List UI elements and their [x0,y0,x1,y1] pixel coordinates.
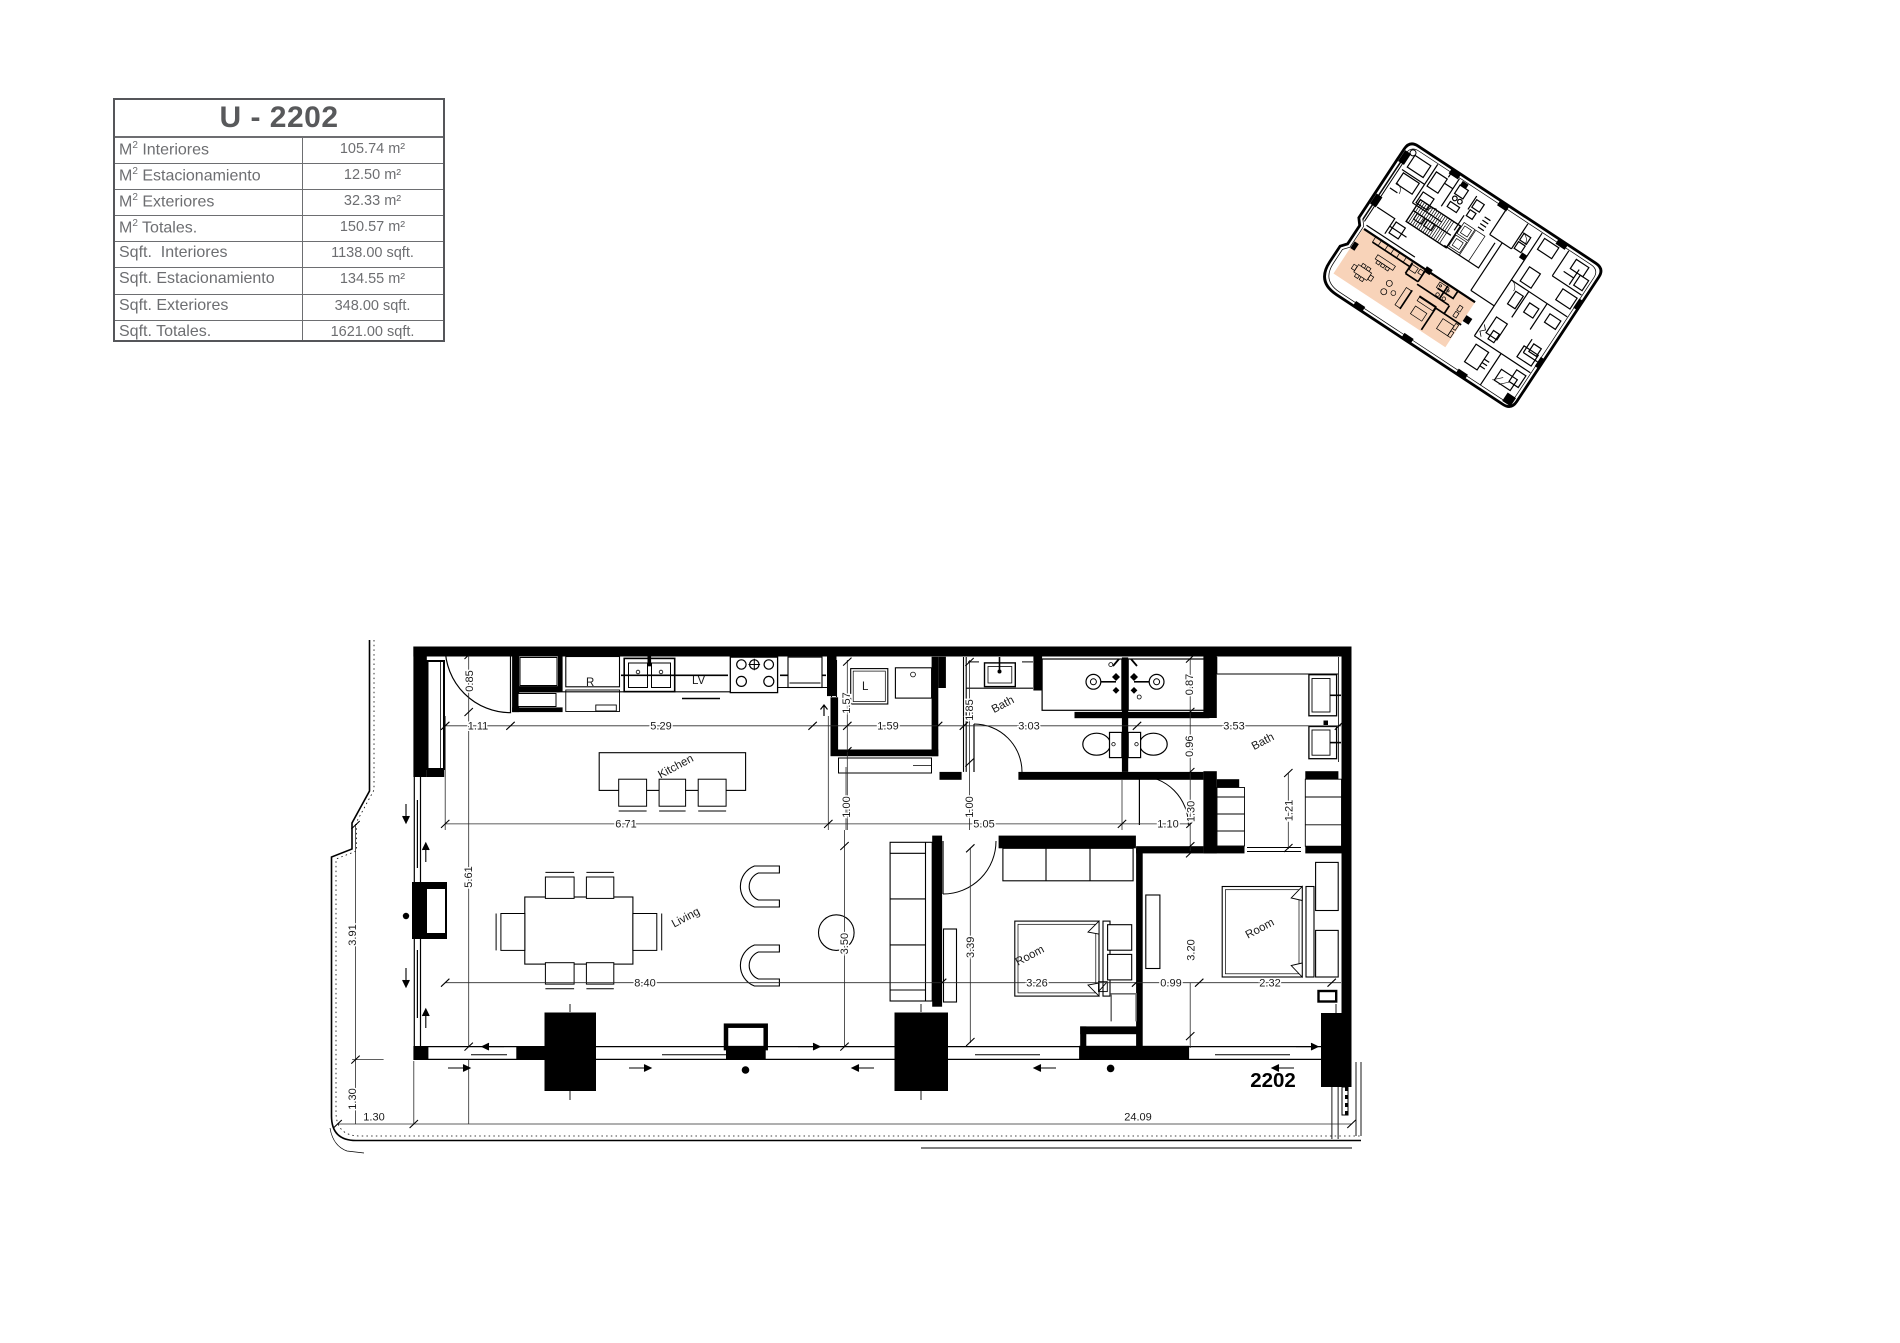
svg-text:Bath: Bath [990,694,1017,716]
svg-text:3.20: 3.20 [1186,939,1198,960]
svg-text:1.30: 1.30 [347,1088,359,1109]
svg-text:8.40: 8.40 [634,977,655,989]
svg-text:5.61: 5.61 [463,866,475,887]
svg-text:1.00: 1.00 [841,796,853,817]
svg-text:2.32: 2.32 [1259,977,1280,989]
svg-text:2202: 2202 [1250,1069,1296,1092]
svg-text:1.30: 1.30 [1185,801,1197,822]
svg-text:1.11: 1.11 [468,721,489,733]
svg-text:1.59: 1.59 [877,721,898,733]
svg-text:3.50: 3.50 [839,933,851,954]
svg-text:1.30: 1.30 [363,1112,384,1124]
svg-text:1.10: 1.10 [1157,819,1178,831]
svg-text:0.96: 0.96 [1184,735,1196,756]
svg-text:3.26: 3.26 [1026,977,1047,989]
svg-text:LV: LV [692,675,706,687]
svg-text:Bath: Bath [1250,731,1277,753]
svg-text:L: L [862,681,869,693]
svg-text:3.91: 3.91 [347,924,359,945]
svg-text:1.85: 1.85 [964,699,976,720]
svg-text:0.85: 0.85 [464,670,476,691]
svg-text:R: R [586,677,594,689]
svg-text:5.29: 5.29 [650,721,671,733]
svg-text:6.71: 6.71 [615,819,636,831]
svg-text:5.05: 5.05 [973,819,994,831]
svg-text:1.21: 1.21 [1284,800,1296,821]
svg-text:1.00: 1.00 [964,796,976,817]
svg-text:1.57: 1.57 [841,692,853,713]
svg-text:3.53: 3.53 [1223,721,1244,733]
svg-text:0.99: 0.99 [1160,977,1181,989]
svg-text:3.39: 3.39 [965,937,977,958]
svg-text:24.09: 24.09 [1124,1112,1152,1124]
svg-text:3.03: 3.03 [1018,721,1039,733]
svg-text:Living: Living [670,906,702,931]
svg-text:0.87: 0.87 [1184,674,1196,695]
